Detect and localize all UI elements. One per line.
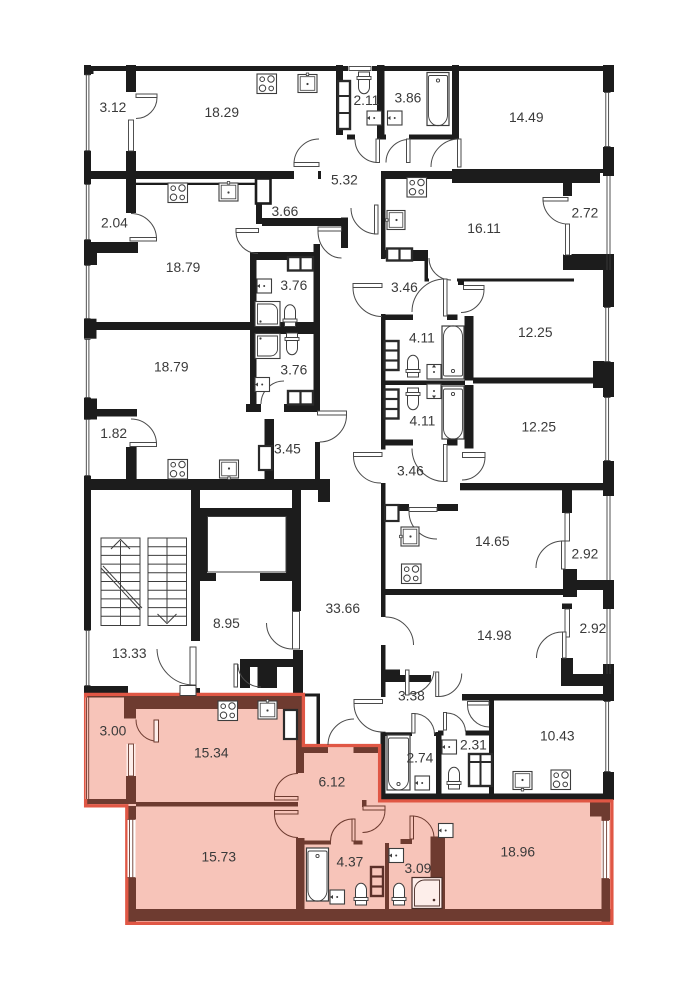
svg-text:4.11: 4.11 [409, 331, 435, 346]
svg-text:18.96: 18.96 [501, 845, 536, 860]
svg-text:3.76: 3.76 [280, 363, 307, 378]
svg-text:15.34: 15.34 [194, 746, 229, 761]
svg-text:12.25: 12.25 [518, 325, 553, 340]
svg-text:2.31: 2.31 [460, 738, 487, 753]
svg-text:14.65: 14.65 [475, 534, 510, 549]
svg-text:16.11: 16.11 [467, 221, 501, 236]
svg-text:3.00: 3.00 [100, 724, 127, 739]
svg-text:12.25: 12.25 [522, 420, 557, 435]
svg-text:3.12: 3.12 [100, 100, 127, 115]
svg-text:8.95: 8.95 [213, 616, 240, 631]
svg-text:3.46: 3.46 [391, 280, 418, 295]
svg-text:6.12: 6.12 [319, 775, 346, 790]
svg-text:2.74: 2.74 [407, 751, 434, 766]
svg-text:3.86: 3.86 [395, 90, 422, 105]
svg-text:18.29: 18.29 [205, 105, 240, 120]
svg-text:5.32: 5.32 [331, 173, 358, 188]
svg-text:2.04: 2.04 [101, 215, 128, 230]
svg-text:13.33: 13.33 [112, 646, 147, 661]
svg-text:2.92: 2.92 [572, 547, 599, 562]
svg-text:4.11: 4.11 [410, 414, 436, 429]
svg-text:15.73: 15.73 [202, 850, 237, 865]
svg-text:18.79: 18.79 [166, 260, 201, 275]
svg-text:10.43: 10.43 [540, 729, 575, 744]
svg-text:3.46: 3.46 [397, 464, 424, 479]
svg-text:33.66: 33.66 [326, 601, 361, 616]
svg-text:14.49: 14.49 [509, 110, 544, 125]
svg-text:3.45: 3.45 [274, 442, 301, 457]
svg-text:18.79: 18.79 [154, 360, 189, 375]
svg-text:3.38: 3.38 [398, 689, 425, 704]
svg-text:4.37: 4.37 [337, 855, 364, 870]
svg-text:3.09: 3.09 [405, 861, 432, 876]
svg-text:3.66: 3.66 [272, 204, 299, 219]
svg-text:2.92: 2.92 [580, 621, 607, 636]
svg-text:2.11: 2.11 [354, 93, 380, 108]
svg-text:3.76: 3.76 [280, 278, 307, 293]
svg-text:1.82: 1.82 [100, 426, 127, 441]
svg-text:14.98: 14.98 [477, 628, 512, 643]
svg-text:2.72: 2.72 [572, 206, 599, 221]
